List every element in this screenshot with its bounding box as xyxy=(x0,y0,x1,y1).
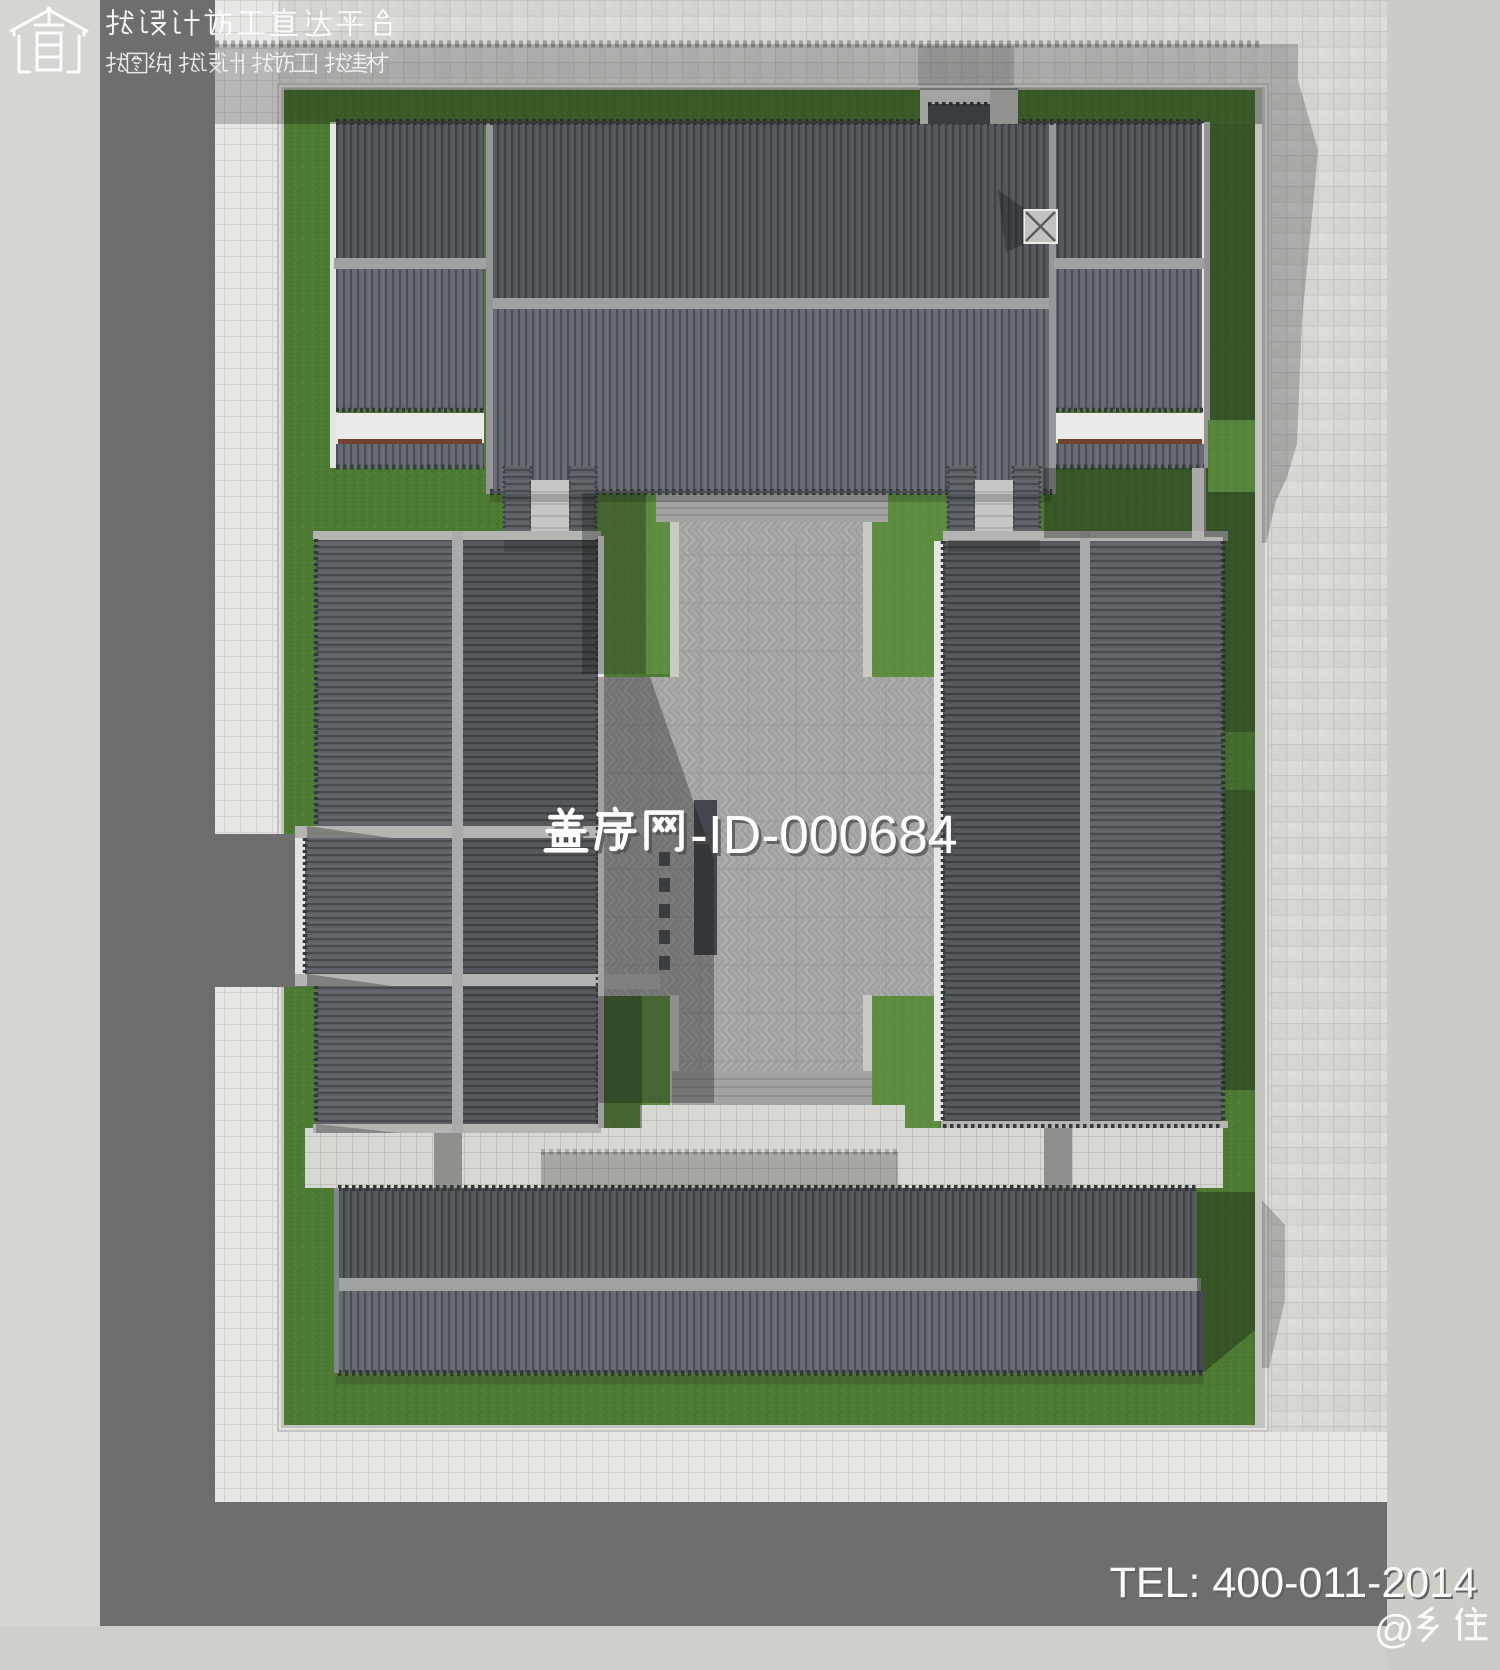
svg-text:TEL: 400-011-2014: TEL: 400-011-2014 xyxy=(1110,1559,1477,1607)
svg-text:-ID-000684: -ID-000684 xyxy=(690,806,958,865)
svg-text:@: @ xyxy=(1374,1608,1415,1652)
